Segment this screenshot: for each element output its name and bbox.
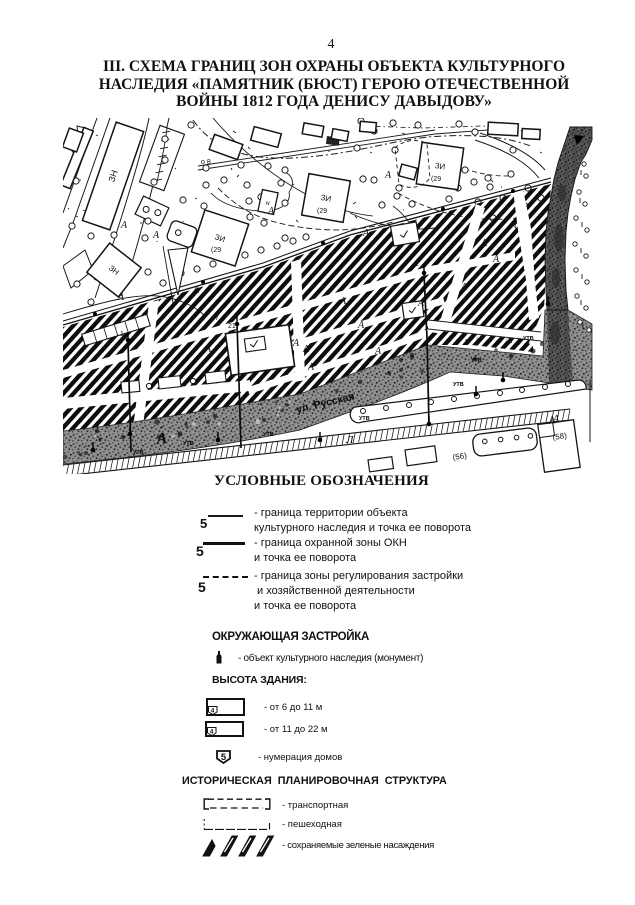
svg-text:2: 2 [415, 261, 419, 268]
svg-text:(29: (29 [317, 208, 327, 215]
svg-text:А: А [552, 414, 560, 425]
svg-text:4: 4 [210, 729, 214, 736]
svg-text:А: А [117, 292, 125, 303]
svg-text:А: А [152, 230, 160, 241]
svg-text:А: А [357, 320, 365, 331]
svg-text:А: А [480, 238, 488, 249]
svg-text:А: А [384, 170, 392, 181]
svg-text:А: А [302, 344, 310, 355]
svg-text:о 8: о 8 [201, 159, 211, 166]
svg-text:1: 1 [120, 331, 124, 338]
svg-text:(29: (29 [211, 247, 221, 254]
svg-text:А: А [155, 430, 169, 448]
svg-text:А: А [362, 228, 370, 239]
svg-text:А: А [492, 254, 500, 265]
svg-text:5: 5 [221, 752, 227, 763]
svg-text:ЗИ: ЗИ [434, 161, 446, 171]
svg-text:УТВ: УТВ [453, 382, 464, 388]
svg-text:А: А [460, 282, 468, 293]
svg-text:21: 21 [228, 323, 236, 330]
svg-text:УТВ: УТВ [183, 441, 194, 447]
svg-text:А: А [307, 362, 315, 373]
svg-text:УТВ: УТВ [471, 358, 482, 364]
svg-text:А: А [292, 338, 300, 349]
svg-text:4: 4 [211, 708, 215, 715]
svg-text:А: А [339, 296, 347, 307]
svg-text:Л: Л [345, 434, 354, 446]
svg-text:А: А [417, 298, 425, 309]
svg-text:7: 7 [215, 315, 219, 322]
svg-text:А: А [374, 346, 382, 357]
svg-text:УТВ: УТВ [523, 336, 534, 342]
svg-text:УТВ: УТВ [263, 432, 274, 438]
svg-text:А: А [204, 344, 212, 355]
svg-text:УТВ: УТВ [133, 450, 144, 456]
svg-text:А: А [192, 285, 200, 296]
svg-text:(29: (29 [431, 176, 441, 183]
svg-text:А: А [267, 206, 275, 217]
svg-text:УТВ: УТВ [359, 416, 370, 422]
svg-text:ЗИ: ЗИ [320, 193, 332, 204]
svg-text:А: А [120, 220, 128, 231]
